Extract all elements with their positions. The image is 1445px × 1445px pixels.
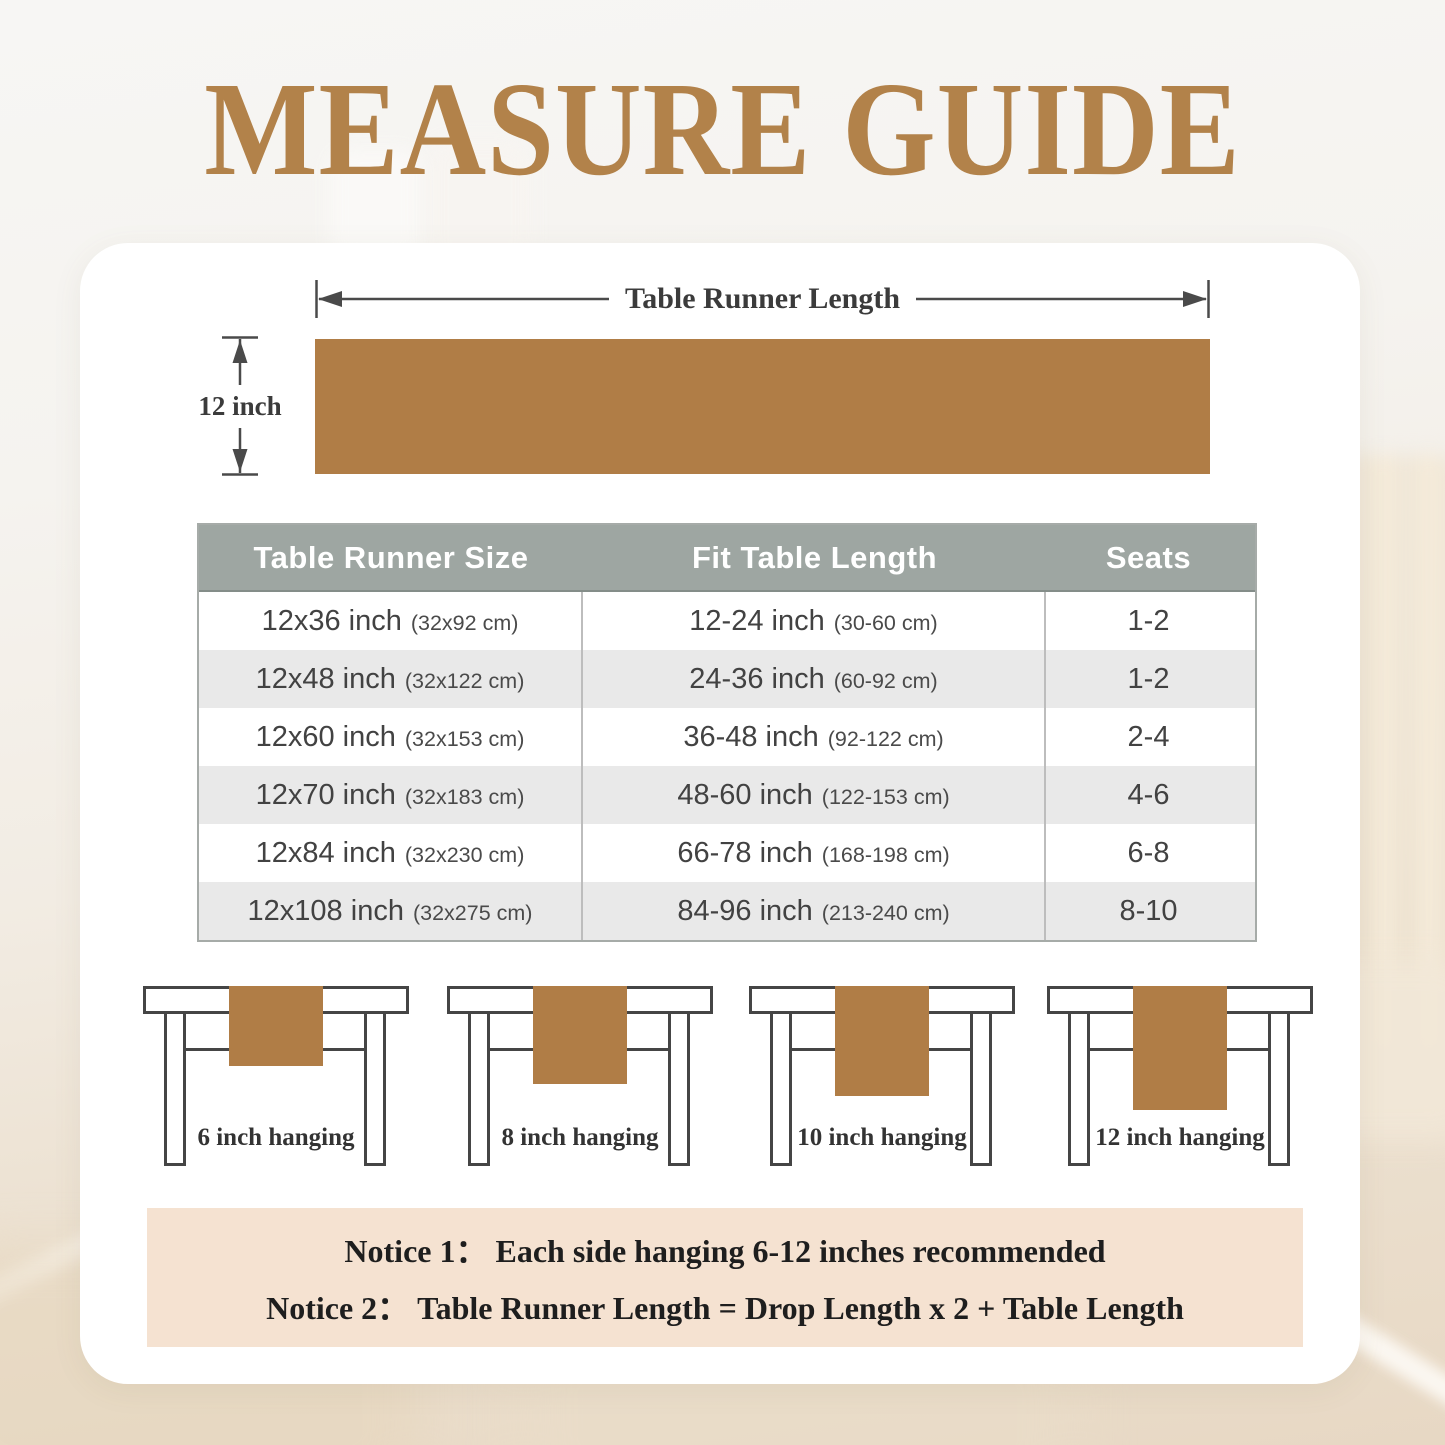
seats-cell: 2-4 [1046, 708, 1251, 766]
column-header-seats: Seats [1046, 525, 1251, 590]
runner-width-label: 12 inch [194, 385, 285, 428]
hanging-label: 10 inch hanging [724, 1124, 1040, 1152]
notice-2-text: Table Runner Length = Drop Length x 2 + … [417, 1290, 1184, 1327]
seats-cell: 1-2 [1046, 592, 1251, 650]
notice-1-text: Each side hanging 6-12 inches recommende… [495, 1233, 1105, 1270]
runner-drape [835, 986, 929, 1096]
fit-length-cell: 36-48 inch(92-122 cm) [583, 708, 1046, 766]
runner-size-cell: 12x70 inch(32x183 cm) [199, 766, 583, 824]
table-row: 12x108 inch(32x275 cm) 84-96 inch(213-24… [199, 882, 1255, 940]
table-runner-swatch [315, 339, 1210, 474]
hanging-example-10in: 10 inch hanging [749, 986, 1015, 1172]
hanging-example-12in: 12 inch hanging [1047, 986, 1313, 1172]
table-row: 12x70 inch(32x183 cm) 48-60 inch(122-153… [199, 766, 1255, 824]
seats-cell: 1-2 [1046, 650, 1251, 708]
runner-size-cell: 12x108 inch(32x275 cm) [199, 882, 583, 940]
runner-drape [1133, 986, 1227, 1110]
runner-length-label: Table Runner Length [609, 282, 916, 315]
seats-cell: 4-6 [1046, 766, 1251, 824]
guide-card: Table Runner Length 12 inch Table Runner… [80, 243, 1360, 1384]
notice-box: Notice 1： Each side hanging 6-12 inches … [147, 1208, 1303, 1347]
table-row: 12x60 inch(32x153 cm) 36-48 inch(92-122 … [199, 708, 1255, 766]
runner-size-cell: 12x60 inch(32x153 cm) [199, 708, 583, 766]
page-title: MEASURE GUIDE [0, 62, 1445, 196]
runner-drape [533, 986, 627, 1084]
fit-length-cell: 48-60 inch(122-153 cm) [583, 766, 1046, 824]
notice-1-label: Notice 1： [344, 1226, 487, 1272]
column-header-runner-size: Table Runner Size [199, 525, 583, 590]
notice-2-label: Notice 2： [266, 1283, 409, 1329]
notice-line-2: Notice 2： Table Runner Length = Drop Len… [266, 1283, 1184, 1329]
seats-cell: 6-8 [1046, 824, 1251, 882]
seats-cell: 8-10 [1046, 882, 1251, 940]
fit-length-cell: 84-96 inch(213-240 cm) [583, 882, 1046, 940]
table-row: 12x48 inch(32x122 cm) 24-36 inch(60-92 c… [199, 650, 1255, 708]
hanging-example-8in: 8 inch hanging [447, 986, 713, 1172]
hanging-example-6in: 6 inch hanging [143, 986, 409, 1172]
fit-length-cell: 24-36 inch(60-92 cm) [583, 650, 1046, 708]
runner-width-label-wrap: 12 inch [175, 336, 305, 476]
runner-size-cell: 12x36 inch(32x92 cm) [199, 592, 583, 650]
hanging-label: 6 inch hanging [118, 1124, 434, 1152]
table-row: 12x36 inch(32x92 cm) 12-24 inch(30-60 cm… [199, 592, 1255, 650]
fit-length-cell: 12-24 inch(30-60 cm) [583, 592, 1046, 650]
table-row: 12x84 inch(32x230 cm) 66-78 inch(168-198… [199, 824, 1255, 882]
size-table-header-row: Table Runner Size Fit Table Length Seats [199, 525, 1255, 592]
column-header-fit-length: Fit Table Length [583, 525, 1046, 590]
notice-line-1: Notice 1： Each side hanging 6-12 inches … [344, 1226, 1105, 1272]
fit-length-cell: 66-78 inch(168-198 cm) [583, 824, 1046, 882]
runner-size-cell: 12x84 inch(32x230 cm) [199, 824, 583, 882]
runner-drape [229, 986, 323, 1066]
size-table: Table Runner Size Fit Table Length Seats… [197, 523, 1257, 942]
hanging-label: 12 inch hanging [1022, 1124, 1338, 1152]
hanging-label: 8 inch hanging [422, 1124, 738, 1152]
runner-length-label-wrap: Table Runner Length [315, 280, 1210, 318]
runner-size-cell: 12x48 inch(32x122 cm) [199, 650, 583, 708]
measure-guide-infographic: MEASURE GUIDE Table Runner Length [0, 0, 1445, 1445]
